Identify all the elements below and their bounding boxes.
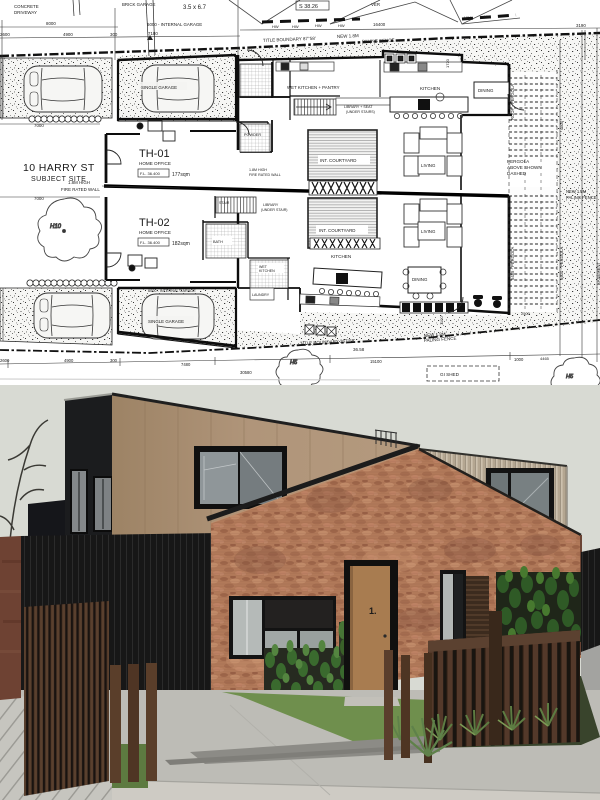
svg-text:NEW 1.8M: NEW 1.8M <box>337 33 359 39</box>
svg-text:7180: 7180 <box>148 31 158 36</box>
svg-text:6485 - PERGOLA: 6485 - PERGOLA <box>510 247 515 280</box>
svg-text:DINING: DINING <box>412 277 428 282</box>
svg-text:ROOF - PERGOLA: ROOF - PERGOLA <box>510 84 515 120</box>
svg-text:INT. COURTYARD: INT. COURTYARD <box>319 228 355 233</box>
svg-text:HW: HW <box>272 24 279 29</box>
svg-text:7480: 7480 <box>181 362 191 367</box>
svg-text:F.L. 36.400: F.L. 36.400 <box>140 240 161 245</box>
svg-text:(UNDER STAIR): (UNDER STAIR) <box>261 208 288 212</box>
svg-text:182sqm: 182sqm <box>172 241 190 247</box>
svg-text:TH-01: TH-01 <box>139 148 170 160</box>
svg-text:BATH: BATH <box>213 240 223 244</box>
svg-text:1.8M HIGH: 1.8M HIGH <box>68 180 90 185</box>
svg-text:6000 - INTERNAL GARAGE: 6000 - INTERNAL GARAGE <box>147 22 202 27</box>
svg-text:KITCHEN: KITCHEN <box>259 269 275 273</box>
svg-text:BRICK GARAGE: BRICK GARAGE <box>122 2 155 7</box>
svg-text:4900: 4900 <box>63 32 73 37</box>
svg-text:LIBRARY: LIBRARY <box>263 203 279 207</box>
svg-text:HW: HW <box>338 23 345 28</box>
svg-text:LIVING: LIVING <box>421 163 436 168</box>
svg-text:LAUNDRY: LAUNDRY <box>252 293 270 297</box>
svg-text:300: 300 <box>110 358 118 363</box>
svg-text:VER: VER <box>371 2 380 7</box>
svg-text:HW: HW <box>484 14 491 19</box>
svg-text:2600: 2600 <box>0 358 10 363</box>
svg-text:6400 - PERGOLA: 6400 - PERGOLA <box>559 247 564 280</box>
svg-text:10 HARRY ST: 10 HARRY ST <box>23 162 95 174</box>
svg-text:2600: 2600 <box>0 32 10 37</box>
svg-text:LIBRARY + SEAT: LIBRARY + SEAT <box>344 105 373 109</box>
svg-text:HOME OFFICE: HOME OFFICE <box>139 161 171 166</box>
svg-text:PERGOLA: PERGOLA <box>507 159 530 164</box>
svg-text:H5: H5 <box>290 360 298 366</box>
svg-text:TH-02: TH-02 <box>139 217 170 229</box>
svg-text:F.L. 36.400: F.L. 36.400 <box>140 171 161 176</box>
svg-text:PALING FENCE: PALING FENCE <box>566 195 597 200</box>
svg-text:FIRE RATED WALL: FIRE RATED WALL <box>249 173 281 177</box>
svg-text:DRIVEWAY: DRIVEWAY <box>14 10 37 15</box>
svg-text:1720: 1720 <box>445 58 450 68</box>
svg-text:S 38.26: S 38.26 <box>299 4 318 10</box>
svg-text:4600: 4600 <box>559 120 564 130</box>
svg-text:ABOVE SHOWN: ABOVE SHOWN <box>507 165 542 170</box>
svg-text:GI SHED: GI SHED <box>440 372 460 377</box>
svg-text:HW: HW <box>292 24 299 29</box>
svg-text:DASHED: DASHED <box>507 171 527 176</box>
svg-text:H5: H5 <box>566 374 574 380</box>
svg-text:H10: H10 <box>50 224 62 230</box>
svg-text:INT. COURTYARD: INT. COURTYARD <box>320 158 356 163</box>
svg-text:HW: HW <box>315 23 322 28</box>
svg-text:(UNDER STAIRS): (UNDER STAIRS) <box>346 110 375 114</box>
svg-text:KITCHEN: KITCHEN <box>420 86 440 91</box>
svg-text:4465: 4465 <box>540 356 550 361</box>
svg-text:EASEMENT: EASEMENT <box>596 262 600 285</box>
svg-text:1100: 1100 <box>439 316 444 325</box>
svg-text:NEW 1.8M: NEW 1.8M <box>566 189 587 194</box>
svg-text:SINGLE GARAGE: SINGLE GARAGE <box>148 319 184 324</box>
svg-text:STAIR: STAIR <box>219 201 230 205</box>
svg-text:4900: 4900 <box>64 358 74 363</box>
svg-text:WET KITCHEN + PANTRY: WET KITCHEN + PANTRY <box>287 85 340 90</box>
svg-text:SINGLE GARAGE: SINGLE GARAGE <box>141 85 177 90</box>
svg-text:2500: 2500 <box>521 311 531 316</box>
svg-text:6000 - INTERNAL GARAGE: 6000 - INTERNAL GARAGE <box>148 289 196 293</box>
svg-text:CONCRETE: CONCRETE <box>14 4 39 9</box>
svg-text:8000: 8000 <box>46 21 56 26</box>
svg-text:KITCHEN: KITCHEN <box>331 254 351 259</box>
svg-text:3.5 x 6.7: 3.5 x 6.7 <box>183 5 207 11</box>
svg-text:16400: 16400 <box>373 22 386 27</box>
svg-text:36.58: 36.58 <box>353 347 365 352</box>
svg-text:1.8M HIGH: 1.8M HIGH <box>249 168 267 172</box>
svg-text:15100: 15100 <box>370 359 382 364</box>
svg-text:300: 300 <box>110 32 118 37</box>
svg-text:LIVING: LIVING <box>421 229 436 234</box>
svg-text:HW: HW <box>464 15 471 20</box>
svg-text:DINING: DINING <box>478 88 494 93</box>
svg-text:HOME OFFICE: HOME OFFICE <box>139 230 171 235</box>
svg-text:POWDER: POWDER <box>244 133 261 137</box>
svg-text:30580: 30580 <box>240 370 252 375</box>
svg-text:FIRE RATED WALL: FIRE RATED WALL <box>61 187 100 192</box>
svg-text:1000: 1000 <box>514 357 524 362</box>
svg-text:3190: 3190 <box>576 23 586 28</box>
svg-text:1.: 1. <box>369 606 377 616</box>
svg-text:177sqm: 177sqm <box>172 172 190 178</box>
